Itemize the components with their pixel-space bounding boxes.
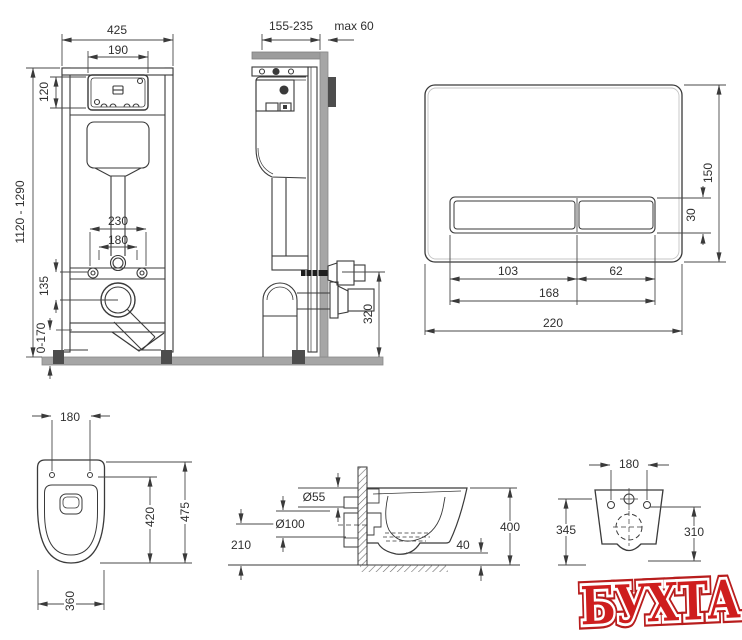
bowl-profile bbox=[367, 488, 467, 554]
wall-stud bbox=[320, 52, 328, 357]
dim-outlet-diameter: Ø100 bbox=[273, 518, 306, 530]
dim-inlet-diameter: Ø55 bbox=[301, 491, 328, 503]
dim-frame-opening-width: 190 bbox=[108, 44, 128, 56]
top-bracket-bar bbox=[252, 52, 327, 59]
dim-buttons-width: 168 bbox=[539, 287, 559, 299]
frame-front-view bbox=[42, 68, 383, 365]
dim-bowl-length: 475 bbox=[179, 500, 191, 524]
dim-bowl-inner-length: 420 bbox=[144, 505, 156, 529]
dim-back-hole-spacing: 180 bbox=[617, 458, 641, 470]
dim-frame-height-range: 1120 - 1290 bbox=[14, 180, 26, 243]
dim-bolt-spacing: 230 bbox=[108, 215, 128, 227]
toilet-top-dims bbox=[32, 416, 192, 610]
threaded-rod bbox=[301, 270, 328, 276]
dim-outlet-axis-height: 210 bbox=[229, 539, 253, 551]
floor-bar bbox=[42, 357, 383, 365]
wall-section bbox=[358, 467, 367, 565]
dim-right-button-width: 62 bbox=[609, 265, 622, 277]
dim-hole-spacing: 180 bbox=[108, 234, 128, 246]
watermark-text: БУХТА bbox=[580, 569, 741, 638]
frame-side-view bbox=[252, 52, 374, 364]
dim-wall-thickness-max: max 60 bbox=[334, 20, 373, 32]
flush-button-small bbox=[579, 201, 653, 229]
dim-back-height-left: 345 bbox=[554, 524, 578, 536]
dim-frame-width-top: 425 bbox=[107, 24, 127, 36]
toilet-top-view bbox=[38, 460, 105, 563]
bowl-outline bbox=[38, 460, 105, 563]
dim-bottom-clearance: 40 bbox=[454, 539, 471, 551]
flush-plate-view bbox=[425, 85, 682, 262]
technical-drawing-page: 425 190 120 1120 - 1290 230 180 135 0-17… bbox=[0, 0, 742, 640]
dim-back-height-right: 310 bbox=[682, 526, 706, 538]
dim-bowl-total-height: 400 bbox=[498, 521, 522, 533]
dim-foot-adjust-range: 0-170 bbox=[35, 323, 47, 354]
dim-outlet-pipe-height: 320 bbox=[362, 304, 374, 324]
dim-bowl-hole-spacing: 180 bbox=[58, 411, 82, 423]
dim-plate-height: 150 bbox=[702, 163, 714, 183]
dim-left-button-width: 103 bbox=[498, 265, 518, 277]
dim-frame-depth-range: 155-235 bbox=[269, 20, 313, 32]
toilet-back-view bbox=[595, 488, 663, 551]
toilet-side-view bbox=[228, 467, 520, 572]
dim-outlet-offset: 135 bbox=[38, 276, 50, 296]
access-box bbox=[88, 75, 148, 110]
dim-access-panel-height: 120 bbox=[38, 82, 50, 102]
dim-bowl-width: 360 bbox=[64, 589, 76, 613]
access-shaft-block bbox=[328, 77, 336, 107]
outlet-flange bbox=[330, 282, 338, 318]
button-recess bbox=[450, 197, 655, 233]
dim-plate-width: 220 bbox=[543, 317, 563, 329]
dim-button-height: 30 bbox=[685, 208, 697, 221]
floor-hatch bbox=[360, 565, 448, 572]
flush-button-large bbox=[454, 201, 575, 229]
flush-plate-body bbox=[425, 85, 682, 262]
watermark: БУХТА БУХТА БУХТА bbox=[576, 570, 742, 636]
